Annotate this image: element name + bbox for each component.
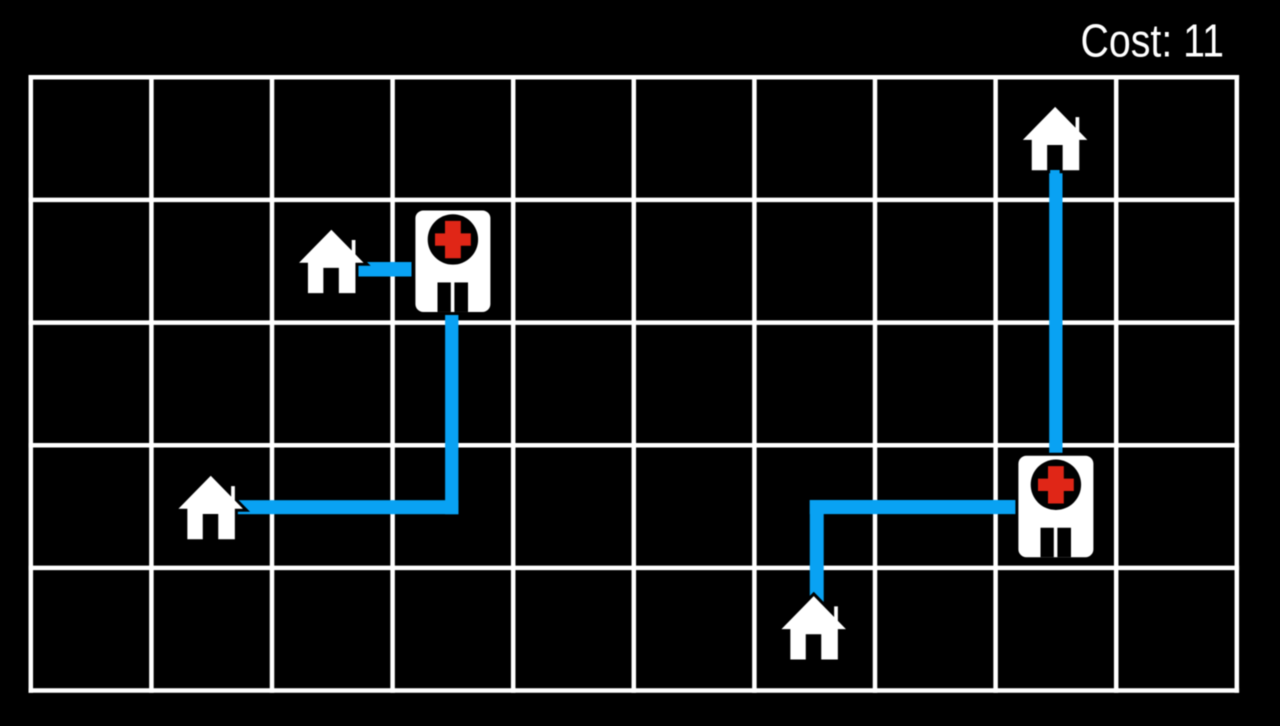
svg-text:Cost: 11: Cost: 11 (1081, 15, 1225, 67)
